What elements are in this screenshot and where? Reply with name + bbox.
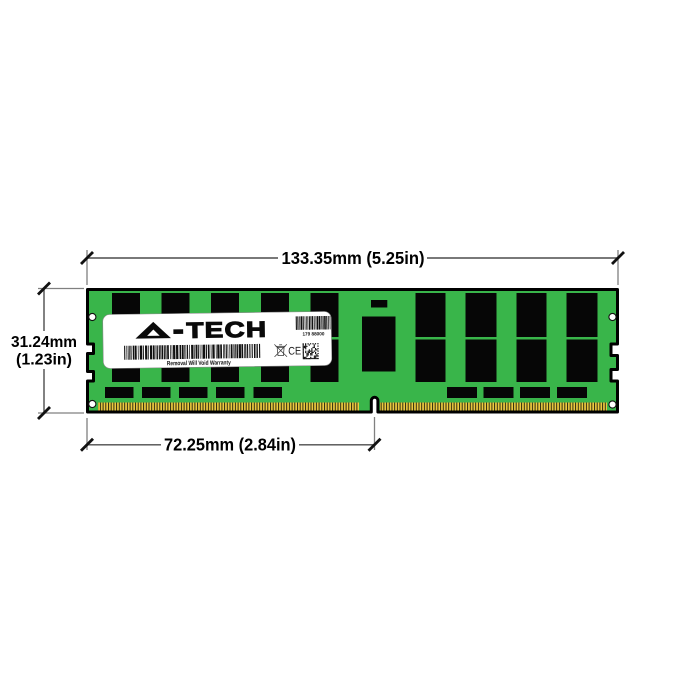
svg-text:179 88000: 179 88000 (302, 331, 324, 337)
svg-text:72.25mm (2.84in): 72.25mm (2.84in) (164, 435, 296, 455)
svg-text:31.24mm: 31.24mm (11, 334, 77, 351)
svg-text:CE: CE (288, 345, 301, 357)
svg-text:133.35mm (5.25in): 133.35mm (5.25in) (282, 248, 425, 268)
svg-text:(1.23in): (1.23in) (16, 352, 72, 369)
svg-text:Removal Will Void Warranty: Removal Will Void Warranty (167, 359, 232, 367)
svg-text:TECH: TECH (186, 317, 267, 343)
